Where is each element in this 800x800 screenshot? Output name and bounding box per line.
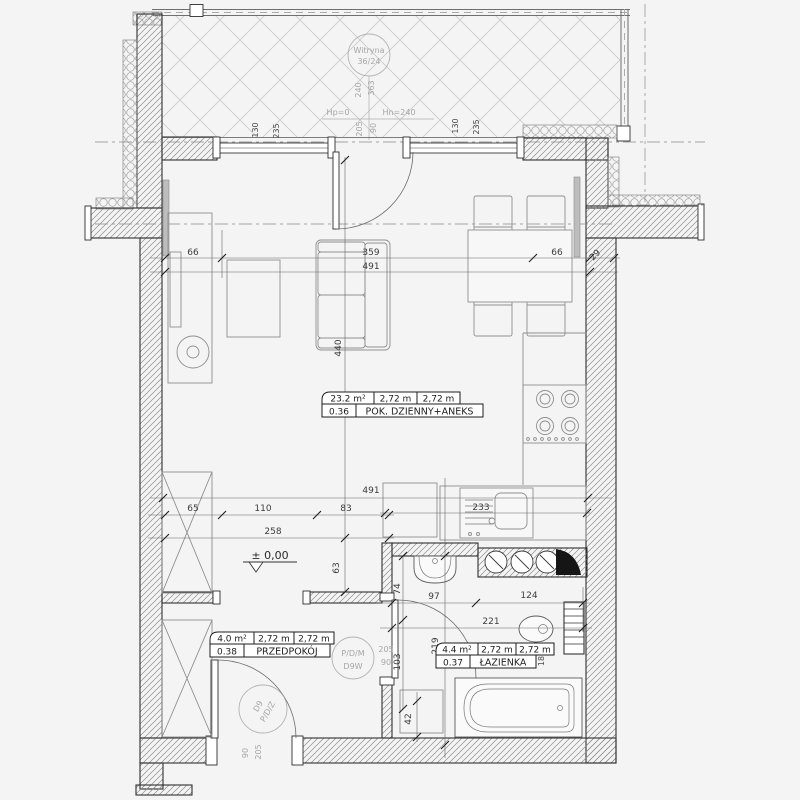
living-dim-w: 2,72 m: [380, 395, 412, 405]
balcony-door-leaf: [333, 152, 339, 229]
wall-right-stub-cap: [698, 204, 704, 240]
entrance-jamb-right: [292, 736, 303, 765]
entrance-jamb-left: [206, 736, 217, 765]
wall-left-upper: [137, 14, 162, 208]
hn-label: Hn=240: [382, 108, 415, 117]
dim-bath-74: 74: [393, 583, 403, 595]
wall-bottom-left: [140, 738, 212, 763]
dim-bath-97: 97: [428, 592, 439, 602]
wall-right-upper: [586, 138, 608, 208]
insulation-left: [123, 40, 137, 208]
dim-top-66-right: 66: [551, 248, 563, 258]
insulation-top-right: [523, 125, 617, 138]
bathroom-dim-w: 2,72 m: [481, 646, 513, 656]
hallway-dim-w: 2,72 m: [258, 635, 290, 645]
living-name: POK. DZIENNY+ANEKS: [366, 407, 474, 418]
partition-living-hall-right: [310, 592, 382, 603]
wall-left-stub-cap: [85, 206, 91, 240]
wall-left-stub: [88, 208, 162, 238]
dim-bath-103: 103: [393, 653, 403, 670]
hp-label: Hp=0: [327, 108, 350, 117]
dim-top-total-491: 491: [362, 262, 379, 272]
partition-living-hall-left: [162, 592, 213, 603]
wall-top-left-pier: [162, 137, 217, 160]
partition-hall-bath-upper: [382, 543, 392, 600]
wall-bottom-left-foot: [136, 785, 192, 795]
wall-right-main: [586, 238, 616, 763]
partition-hall-bath-lower: [382, 684, 392, 738]
washbasin: [414, 556, 456, 583]
room-table-bathroom: 4.4 m² 2,72 m 2,72 m 0.37 ŁAZIENKA 18: [436, 643, 554, 669]
room-table-living: 23.2 m² 2,72 m 2,72 m 0.36 POK. DZIENNY+…: [322, 392, 483, 418]
partition-cap-left: [213, 591, 220, 604]
balcony-door-height: 205: [355, 121, 364, 136]
duct-vent-circles: [485, 551, 558, 573]
dim-low-total-258: 258: [264, 527, 281, 537]
dim-bath-221: 221: [482, 617, 499, 627]
balcony: Witryna 36/24 240 363 Hp=0 Hn=240 205 90…: [152, 5, 630, 142]
room-table-hallway: 4.0 m² 2,72 m 2,72 m 0.38 PRZEDPOKÓJ: [210, 632, 334, 658]
dining-table: [468, 230, 572, 302]
dim-kitchen-491: 491: [362, 486, 379, 496]
window2-dim-a: 130: [451, 118, 460, 133]
dim-low-83: 83: [340, 504, 351, 514]
balcony-dim-240: 240: [354, 82, 363, 97]
living-area: 23.2 m²: [330, 395, 366, 405]
dim-depth-440: 440: [334, 339, 344, 356]
radiator-right: [574, 177, 580, 257]
bathroom-number: 0.37: [443, 659, 463, 669]
toilet: [519, 616, 553, 642]
dim-low-110: 110: [254, 504, 271, 514]
window-1-jamb-left: [213, 137, 220, 158]
wall-right-stub: [586, 206, 700, 238]
dim-bath-42: 42: [404, 713, 414, 724]
bathroom-name: ŁAZIENKA: [479, 658, 527, 669]
dim-top-66-left: 66: [187, 248, 199, 258]
living-dim-h: 2,72 m: [423, 395, 455, 405]
hallway-dim-h: 2,72 m: [298, 635, 330, 645]
dim-top-359: 359: [362, 248, 379, 258]
hallway-number: 0.38: [217, 648, 237, 658]
insulation-left-stub: [96, 198, 133, 209]
window1-dim-b: 235: [272, 123, 281, 138]
wall-bottom-right: [293, 738, 616, 763]
level-value: ± 0,00: [251, 549, 288, 562]
window-2-jamb-left: [403, 137, 410, 158]
entrance-door-height-note: 205: [254, 744, 263, 759]
glazing-label: Witryna: [353, 46, 384, 55]
partition-cap-right: [303, 591, 310, 604]
bathroom-area: 4.4 m²: [442, 646, 472, 656]
wall-left-main: [140, 238, 162, 738]
railing-end-cap: [617, 126, 630, 141]
bathtub: [455, 678, 582, 737]
balcony-dim-363: 363: [367, 80, 376, 95]
balcony-floor-hatch-right: [523, 16, 620, 125]
bathroom-side-note: 18: [537, 656, 546, 666]
dim-passage-63: 63: [332, 562, 342, 573]
floor-plan-drawing: Witryna 36/24 240 363 Hp=0 Hn=240 205 90…: [0, 0, 800, 800]
glazing-size: 36/24: [357, 57, 380, 66]
dim-low-65: 65: [187, 504, 198, 514]
entrance-door-width-note: 90: [241, 748, 250, 758]
bath-door-height-note: 205: [378, 645, 393, 654]
living-number: 0.36: [329, 408, 349, 418]
bathroom-dim-h: 2,72 m: [519, 646, 551, 656]
railing-post: [190, 5, 203, 17]
bath-door-width-note: 90: [381, 658, 391, 667]
bathroom-door-type: P/D/M: [341, 649, 364, 658]
balcony-door-width: 90: [369, 123, 378, 133]
window1-dim-a: 130: [251, 122, 260, 137]
hallway-area: 4.0 m²: [217, 635, 247, 645]
hallway-name: PRZEDPOKÓJ: [256, 646, 317, 658]
floor-plan-page: Witryna 36/24 240 363 Hp=0 Hn=240 205 90…: [0, 0, 800, 800]
bathroom-door-code: D9W: [343, 662, 362, 671]
insulation-right-stub: [608, 195, 700, 206]
window-2-jamb-right: [517, 137, 524, 158]
dim-bath-124: 124: [520, 591, 537, 601]
dim-sink-233: 233: [472, 503, 489, 513]
window2-dim-b: 235: [472, 119, 481, 134]
